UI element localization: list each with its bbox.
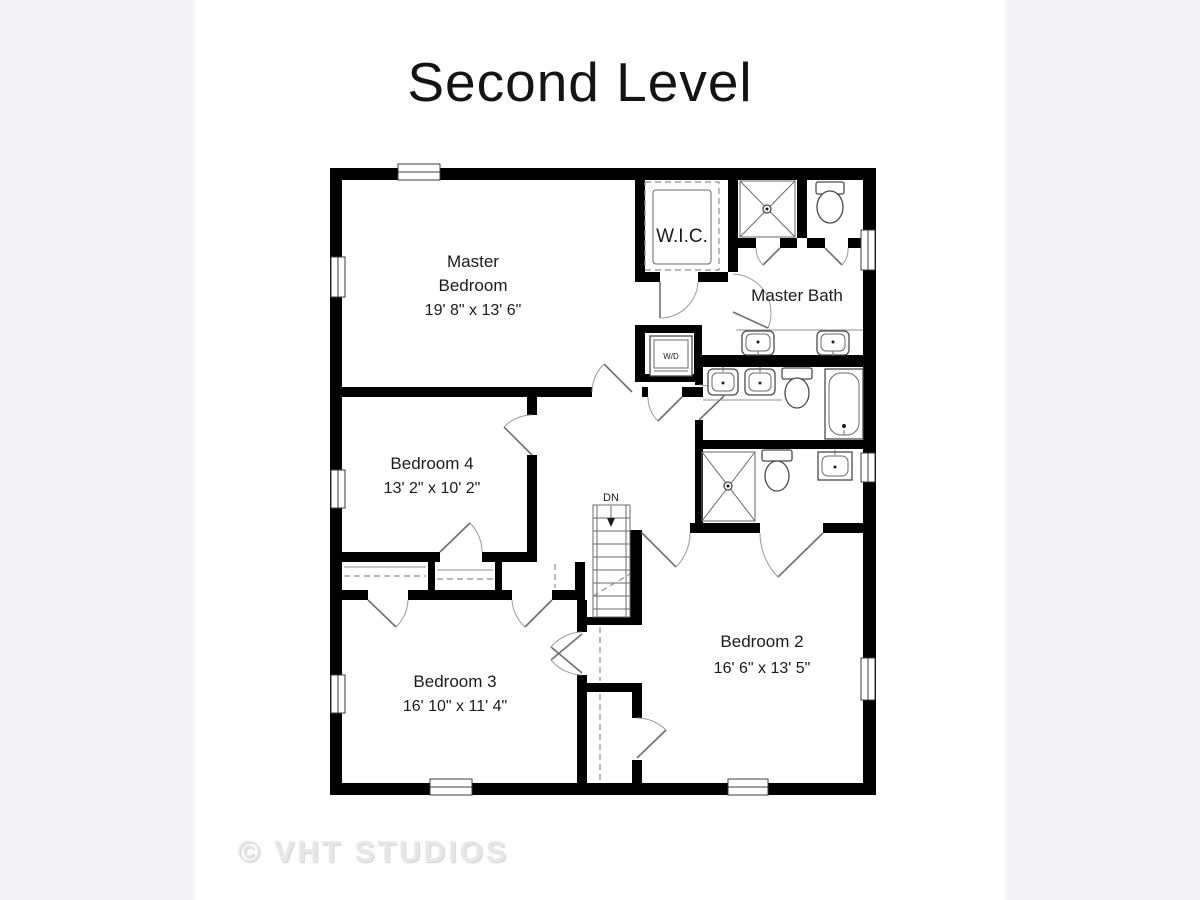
sink-icon	[818, 450, 852, 480]
door-icon	[825, 248, 848, 265]
room-label-master-bedroom-line1: Master	[447, 252, 499, 271]
shower-icon	[702, 452, 755, 521]
room-label-master-bath: Master Bath	[751, 286, 843, 305]
door-icon	[592, 364, 632, 392]
room-dims-bedroom4: 13' 2" x 10' 2"	[384, 480, 481, 497]
sink-icon	[745, 367, 775, 395]
stairs-down-label: DN	[603, 492, 619, 504]
window-icon	[331, 675, 345, 713]
door-icon	[660, 282, 698, 318]
door-icon	[440, 523, 482, 552]
room-dims-master-bedroom: 19' 8" x 13' 6"	[425, 302, 522, 319]
matte-right	[1005, 0, 1200, 900]
room-label-wic: W.I.C.	[656, 226, 708, 247]
room-dims-bedroom2: 16' 6" x 13' 5"	[714, 660, 811, 677]
down-arrow-head	[607, 518, 615, 527]
window-icon	[430, 779, 472, 795]
door-icon	[637, 718, 666, 758]
room-label-bedroom4: Bedroom 4	[390, 454, 473, 473]
matte-left	[0, 0, 195, 900]
door-icon	[512, 600, 552, 627]
floor-plan: Master Bedroom 19' 8" x 13' 6" W.I.C. Ma…	[330, 160, 876, 800]
stairs-icon	[593, 505, 630, 617]
window-icon	[861, 453, 875, 482]
page-title: Second Level	[0, 50, 1160, 114]
door-icon	[504, 415, 532, 455]
sink-icon	[817, 331, 849, 356]
shower-icon	[740, 181, 795, 237]
door-icon	[368, 600, 408, 627]
door-icon	[648, 397, 682, 421]
door-icon	[642, 533, 690, 567]
room-dims-bedroom3: 16' 10" x 11' 4"	[403, 698, 507, 715]
room-label-bedroom3: Bedroom 3	[413, 672, 496, 691]
room-label-bedroom2: Bedroom 2	[720, 632, 803, 651]
door-icon	[756, 248, 780, 265]
toilet-icon	[816, 182, 844, 223]
window-icon	[861, 658, 875, 700]
window-icon	[398, 164, 440, 180]
watermark: © VHT STUDIOS	[238, 836, 509, 870]
window-icon	[331, 257, 345, 297]
toilet-icon	[782, 368, 812, 408]
window-icon	[331, 470, 345, 508]
room-label-master-bedroom-line2: Bedroom	[439, 276, 508, 295]
window-icon	[728, 779, 768, 795]
floor-plan-page: Second Level	[0, 0, 1200, 900]
toilet-icon	[762, 450, 792, 491]
door-icon	[760, 533, 823, 577]
window-icon	[861, 230, 875, 270]
laundry-label: W/D	[663, 352, 679, 361]
bathtub-icon	[825, 369, 863, 439]
